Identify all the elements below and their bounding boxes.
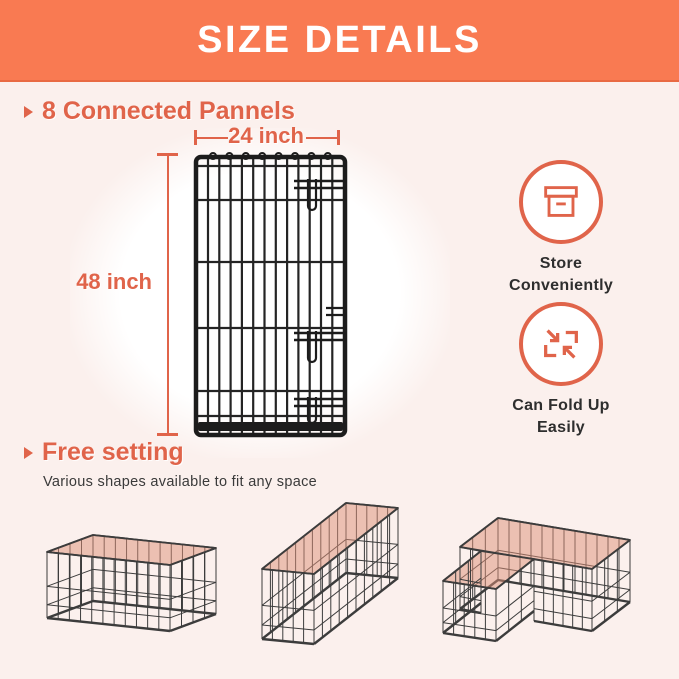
feature-fold: Can Fold Up Easily [494, 302, 628, 438]
width-dimension-label: 24 inch [224, 123, 308, 149]
section-free-title: Free setting [42, 438, 184, 467]
feature-store-label: Store Conveniently [509, 253, 613, 296]
dim-height-line [167, 154, 170, 434]
header-banner: SIZE DETAILS [0, 0, 679, 82]
size-details-infographic: SIZE DETAILS 8 Connected Pannels 24 inch… [0, 0, 679, 679]
square-pen-illustration [15, 512, 230, 652]
rectangle-pen-illustration [246, 485, 411, 660]
l-shape-pen-illustration [438, 485, 668, 665]
page-title: SIZE DETAILS [197, 19, 482, 62]
dim-width-line-right [306, 137, 338, 140]
section-panels-title: 8 Connected Pannels [42, 97, 295, 126]
feature-store-circle [519, 160, 603, 244]
feature-store: Store Conveniently [494, 160, 628, 296]
triangle-bullet-icon [24, 447, 33, 459]
storage-box-icon [538, 179, 584, 225]
section-panels-heading: 8 Connected Pannels [24, 97, 295, 126]
section-free-heading: Free setting [24, 438, 184, 467]
wire-panel-illustration [192, 150, 350, 442]
height-dimension-label: 48 inch [56, 269, 152, 295]
fold-arrows-icon [538, 321, 584, 367]
feature-fold-circle [519, 302, 603, 386]
triangle-bullet-icon [24, 106, 33, 118]
feature-fold-label: Can Fold Up Easily [512, 395, 610, 438]
